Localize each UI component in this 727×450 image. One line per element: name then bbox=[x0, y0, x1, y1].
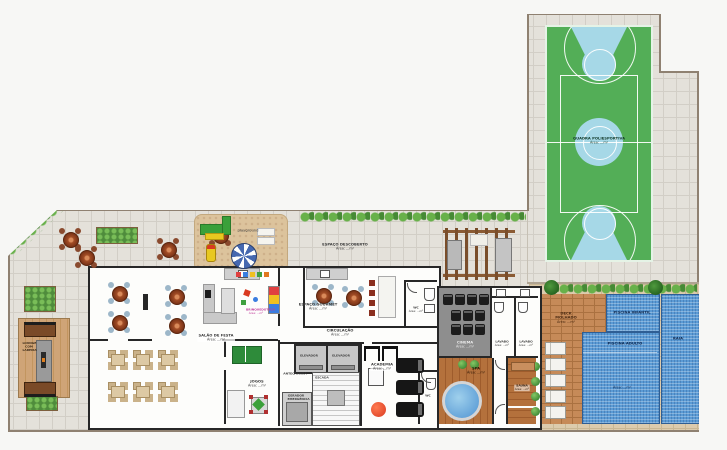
terrace-table-group bbox=[155, 236, 181, 262]
playground-slide-chute bbox=[205, 233, 224, 240]
wall-int bbox=[404, 280, 437, 282]
cinema-seat bbox=[451, 310, 461, 321]
playground-bench bbox=[257, 237, 275, 245]
label-line: ANTECÂMARA bbox=[283, 372, 306, 375]
cinema-seat bbox=[467, 294, 477, 305]
label-line: playground bbox=[237, 229, 258, 233]
area-text: Área: ...m² bbox=[299, 307, 338, 311]
toy-shelf-row bbox=[236, 272, 241, 277]
plant-icon bbox=[458, 360, 467, 369]
elevator bbox=[326, 344, 360, 374]
wall-int bbox=[490, 288, 492, 356]
plant-icon bbox=[531, 392, 540, 401]
spa-hot-tub bbox=[442, 381, 482, 421]
lavabo-label: LAVABO Área: ...m² bbox=[495, 341, 510, 348]
cinema-seat bbox=[463, 310, 473, 321]
wall-bottom bbox=[8, 430, 699, 432]
wall-int bbox=[303, 266, 305, 328]
barbecue-grill bbox=[495, 238, 512, 272]
toilet-icon bbox=[496, 289, 506, 297]
paver-joint bbox=[527, 211, 528, 283]
salao-label: SALÃO DE FESTA Área: ...m² bbox=[197, 334, 235, 342]
floor-plan: QUADRA POLIESPORTIVA Área: ...m² DECK MO… bbox=[0, 0, 727, 450]
area-text: Área: ...m² bbox=[322, 247, 368, 251]
hedge-top-row bbox=[300, 211, 526, 223]
wall-int bbox=[278, 340, 280, 426]
stove-icon bbox=[205, 290, 211, 298]
piscina-adulto-area-label: Área: ...m² bbox=[613, 386, 631, 390]
toilet-icon bbox=[520, 289, 530, 297]
area-text: Área: ...m² bbox=[467, 371, 485, 375]
dining-table-group bbox=[163, 312, 189, 338]
label-line: GERADOR EMERGÊNCIA bbox=[288, 395, 305, 402]
square-table-group bbox=[156, 380, 178, 402]
deck-molhado-label: DECK MOLHADO Área: ...m² bbox=[553, 312, 579, 324]
area-text: Área: ...m² bbox=[519, 344, 534, 347]
hedge-diagonal bbox=[4, 200, 66, 259]
wall-int bbox=[506, 358, 508, 424]
planter-box bbox=[26, 396, 58, 411]
dining-table-group bbox=[163, 283, 189, 309]
playground-carousel bbox=[231, 243, 257, 269]
planter-box bbox=[96, 227, 138, 244]
games-table bbox=[227, 390, 245, 418]
square-table-group bbox=[131, 348, 153, 370]
playground-bench bbox=[257, 228, 275, 236]
square-table-group bbox=[156, 348, 178, 370]
toilet-icon bbox=[518, 302, 528, 313]
wall-int bbox=[404, 280, 406, 326]
raia-label: RAIA bbox=[673, 337, 683, 341]
playground-label: playground bbox=[237, 229, 258, 233]
toy-ball bbox=[253, 297, 258, 302]
area-text: Área: ...m² bbox=[495, 344, 510, 347]
cinema-label: CINEMA Área: ...m² bbox=[456, 341, 474, 349]
wall-int bbox=[224, 370, 226, 424]
wc-label: WC Área: ...m² bbox=[409, 307, 424, 314]
wall-int bbox=[360, 342, 362, 426]
area-text: Área: ...m² bbox=[613, 386, 631, 390]
pool-lounger bbox=[545, 390, 566, 403]
pergola-post bbox=[465, 228, 468, 280]
quadra-label: QUADRA POLIESPORTIVA Área: ...m² bbox=[573, 137, 625, 145]
cinema-seat bbox=[475, 310, 485, 321]
wall-int bbox=[506, 356, 538, 358]
floor-plan-canvas: QUADRA POLIESPORTIVA Área: ...m² DECK MO… bbox=[0, 0, 727, 450]
pool-lounger bbox=[545, 374, 566, 387]
cinema-seat bbox=[443, 294, 453, 305]
bar-counter bbox=[378, 276, 396, 318]
gerador-label: GERADOR EMERGÊNCIA bbox=[288, 395, 305, 402]
lounge-label: LOUNGE COM LAREIRA bbox=[23, 342, 36, 352]
label-line: DECK MOLHADO bbox=[553, 312, 579, 321]
dining-table-group bbox=[106, 280, 132, 306]
bar-stools bbox=[369, 280, 375, 286]
pergola bbox=[443, 228, 515, 280]
wall-int bbox=[303, 326, 437, 328]
label-line: WC bbox=[425, 394, 431, 397]
label-line: RAIA bbox=[673, 337, 683, 341]
lounge-bench bbox=[24, 322, 56, 337]
ping-pong-net-line bbox=[245, 346, 246, 362]
cinema-seat bbox=[479, 294, 489, 305]
palm-tree-icon bbox=[544, 280, 559, 295]
area-text: Área: ...m² bbox=[409, 310, 424, 313]
wall-wing-left bbox=[527, 13, 529, 211]
area-text: Área: ...m² bbox=[246, 312, 266, 315]
label-line: ESCADA bbox=[315, 376, 329, 379]
brinquedoteca-label: BRINQUEDOTECA Área: ...m² bbox=[246, 309, 266, 316]
generator-unit bbox=[286, 402, 308, 422]
area-text: Área: ...m² bbox=[198, 338, 233, 342]
sauna-label: SAUNA Área: ...m² bbox=[514, 385, 530, 392]
area-text: Área: ...m² bbox=[371, 367, 393, 371]
label-line: ELEVADOR bbox=[332, 354, 350, 357]
antecamara-label: ANTECÂMARA bbox=[283, 372, 306, 375]
piscina-raia bbox=[661, 294, 700, 424]
pool-hedge-row bbox=[545, 283, 697, 295]
stair-landing bbox=[327, 390, 345, 406]
square-table-group bbox=[131, 380, 153, 402]
area-text: Área: ...m² bbox=[553, 320, 579, 324]
sports-court: QUADRA POLIESPORTIVA Área: ...m² bbox=[545, 25, 653, 262]
area-text: Área: ...m² bbox=[515, 388, 530, 391]
label-line: ELEVADOR bbox=[300, 354, 318, 357]
espaco-descoberto-label: ESPAÇO DESCOBERTO Área: ...m² bbox=[322, 243, 368, 251]
exercise-ball bbox=[371, 402, 386, 417]
lounge-bench bbox=[24, 382, 56, 397]
terrace-table-group bbox=[73, 244, 99, 270]
gourmet-label: ESPAÇO GOURMET Área: ...m² bbox=[299, 303, 338, 311]
spa-label: SPA Área: ...m² bbox=[467, 367, 485, 375]
label-line: PISCINA ADULTO bbox=[608, 342, 643, 346]
barbecue-grill bbox=[447, 240, 462, 270]
treadmill bbox=[396, 402, 424, 417]
cinema-seat bbox=[455, 294, 465, 305]
academia-label: ACADEMIA Área: ...m² bbox=[370, 363, 393, 371]
planter-box bbox=[24, 286, 56, 312]
area-text: Área: ...m² bbox=[573, 141, 625, 145]
kitchen-island bbox=[221, 288, 235, 314]
board-game-chairs bbox=[249, 395, 253, 399]
piscina-adulto-label: PISCINA ADULTO bbox=[608, 342, 643, 346]
area-text: Área: ...m² bbox=[327, 333, 354, 337]
plant-icon bbox=[531, 377, 540, 386]
pool-lounger bbox=[545, 342, 566, 355]
sink-icon bbox=[424, 304, 435, 313]
cinema-seat bbox=[475, 324, 485, 335]
sink-icon bbox=[320, 270, 330, 278]
lavabo-label: LAVABO Área: ...m² bbox=[519, 341, 534, 348]
wall-int bbox=[492, 358, 494, 424]
wc-label: WC bbox=[425, 394, 431, 397]
wall-diagonal bbox=[7, 208, 57, 255]
gourmet-table-group bbox=[340, 284, 366, 310]
jogos-label: JOGOS Área: ...m² bbox=[248, 380, 266, 388]
wall-step bbox=[659, 71, 699, 73]
square-table-group bbox=[106, 348, 128, 370]
wall-int bbox=[128, 339, 152, 341]
label-line: LOUNGE COM LAREIRA bbox=[23, 342, 36, 352]
wall-left bbox=[8, 254, 10, 432]
partition bbox=[143, 294, 148, 310]
treadmill bbox=[396, 380, 424, 395]
elevator bbox=[294, 344, 328, 374]
toilet-icon bbox=[424, 288, 435, 301]
toilet-icon bbox=[494, 302, 504, 313]
area-text: Área: ...m² bbox=[248, 384, 266, 388]
piscina-infantil-label: PISCINA INFANTIL bbox=[613, 311, 650, 315]
palm-tree-icon bbox=[648, 280, 663, 295]
escada-label: ESCADA bbox=[315, 376, 330, 379]
square-table-group bbox=[106, 380, 128, 402]
elevator-label: ELEVADOR bbox=[332, 354, 350, 357]
area-text: Área: ...m² bbox=[456, 345, 474, 349]
flame-icon bbox=[42, 358, 45, 362]
wall-int bbox=[90, 339, 108, 341]
sauna-bench bbox=[511, 362, 535, 371]
circulacao-label: CIRCULAÇÃO Área: ...m² bbox=[327, 329, 354, 337]
wall-int bbox=[372, 342, 437, 344]
wall-wing-top bbox=[527, 13, 661, 15]
pool-lounger bbox=[545, 358, 566, 371]
plant-icon bbox=[531, 407, 540, 416]
pool-lounger bbox=[545, 406, 566, 419]
dining-table-group bbox=[106, 309, 132, 335]
wall-int bbox=[514, 296, 516, 356]
ping-pong-table bbox=[232, 346, 262, 364]
cinema-seat bbox=[451, 324, 461, 335]
cinema-seat bbox=[463, 324, 473, 335]
pool-lane-line bbox=[583, 352, 657, 353]
pergola-table bbox=[470, 234, 488, 246]
playground-spring-toy bbox=[206, 244, 216, 262]
elevator-label: ELEVADOR bbox=[300, 354, 318, 357]
court-3pt-bottom bbox=[564, 205, 636, 262]
weight-rack-icon bbox=[364, 346, 380, 361]
wall-int bbox=[437, 356, 492, 358]
toy-block bbox=[241, 300, 246, 305]
treadmill bbox=[396, 358, 424, 373]
wall-wing-right bbox=[659, 13, 661, 73]
label-line: PISCINA INFANTIL bbox=[613, 311, 650, 315]
